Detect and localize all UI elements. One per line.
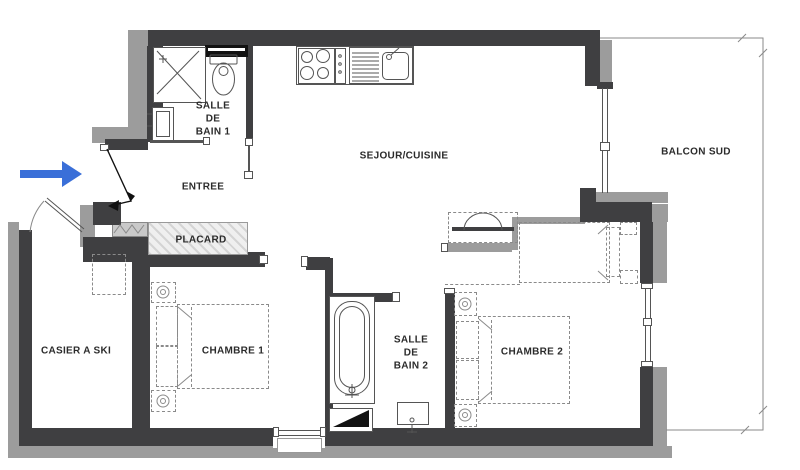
bed-headboard (456, 360, 479, 400)
bathroom1-high-window (205, 45, 248, 57)
wall-segment (595, 202, 652, 222)
door-swing-icon (30, 198, 84, 232)
toilet-icon (210, 55, 237, 95)
sliding-door (607, 88, 608, 193)
nightstand-icon (620, 270, 638, 284)
room-label-balcon-sud: BALCON SUD (661, 146, 731, 159)
window-sill (277, 438, 322, 453)
window-jamb (641, 361, 653, 367)
wall-segment (600, 40, 612, 88)
bed-icon (519, 222, 610, 283)
nightstand-icon (454, 292, 477, 316)
wall-segment (246, 45, 253, 145)
wall-segment (128, 30, 148, 130)
wall-segment (8, 222, 19, 454)
wall-segment (652, 204, 668, 222)
door-jamb (301, 256, 308, 267)
room-label-chambre-2: CHAMBRE 2 (501, 346, 563, 359)
bed-headboard (156, 346, 178, 387)
stove-panel (335, 48, 346, 84)
wall-segment (93, 202, 121, 225)
window-glass (277, 435, 322, 436)
wall-segment (585, 46, 600, 86)
stove-icon (298, 48, 335, 84)
bed-headboard (456, 321, 479, 359)
bed-pillow-line (491, 320, 492, 400)
door-jamb (100, 144, 109, 151)
storage-outline (92, 254, 126, 295)
window-jamb (273, 427, 279, 437)
room-label-sejour-cuisine: SEJOUR/CUISINE (360, 150, 449, 163)
wall-segment (132, 258, 150, 428)
wall-segment (597, 82, 613, 89)
door-opening-line (445, 284, 520, 285)
washbasin-icon (397, 402, 429, 425)
bed-pillow-line (191, 307, 192, 387)
wall-segment (580, 188, 596, 222)
nightstand-icon (151, 390, 176, 412)
wall-segment (8, 446, 672, 458)
room-label-salle-de-bain-1: SALLE DE BAIN 1 (196, 100, 231, 139)
room-label-casier-a-ski: CASIER A SKI (41, 345, 111, 358)
bathtub-basin (339, 306, 365, 388)
window (636, 283, 668, 367)
tv-screen (452, 227, 514, 231)
wall-segment (19, 230, 32, 446)
room-label-entree: ENTREE (182, 181, 224, 194)
bed-headboard (156, 306, 178, 346)
wall-segment (105, 139, 148, 150)
bed-pillow (606, 227, 620, 277)
door-jamb (441, 243, 448, 252)
wall-segment (446, 243, 512, 252)
door-jamb (444, 288, 455, 294)
room-label-salle-de-bain-2: SALLE DE BAIN 2 (394, 334, 429, 373)
window-sash (643, 318, 652, 326)
sliding-door-handle (600, 142, 610, 151)
door-jamb (244, 171, 253, 179)
window-glass (277, 430, 322, 431)
floor-plan: SALLE DE BAIN 1 ENTREE SEJOUR/CUISINE BA… (0, 0, 800, 470)
door-jamb (259, 255, 268, 264)
entrance-arrow-icon (20, 161, 82, 187)
door-jamb (392, 292, 400, 302)
door-jamb (245, 138, 253, 146)
nightstand-icon (620, 222, 637, 235)
room-label-placard: PLACARD (176, 234, 227, 247)
window-jamb (320, 427, 326, 437)
sliding-door (602, 88, 603, 193)
nightstand-icon (454, 404, 477, 427)
sink-basin (382, 52, 409, 80)
shower-icon (153, 47, 206, 103)
nightstand-icon (151, 282, 176, 303)
window-jamb (641, 283, 653, 289)
room-label-chambre-1: CHAMBRE 1 (202, 345, 264, 358)
technical-duct-icon (329, 408, 373, 432)
towel-radiator-inner (156, 111, 170, 137)
wall-segment (148, 30, 600, 46)
